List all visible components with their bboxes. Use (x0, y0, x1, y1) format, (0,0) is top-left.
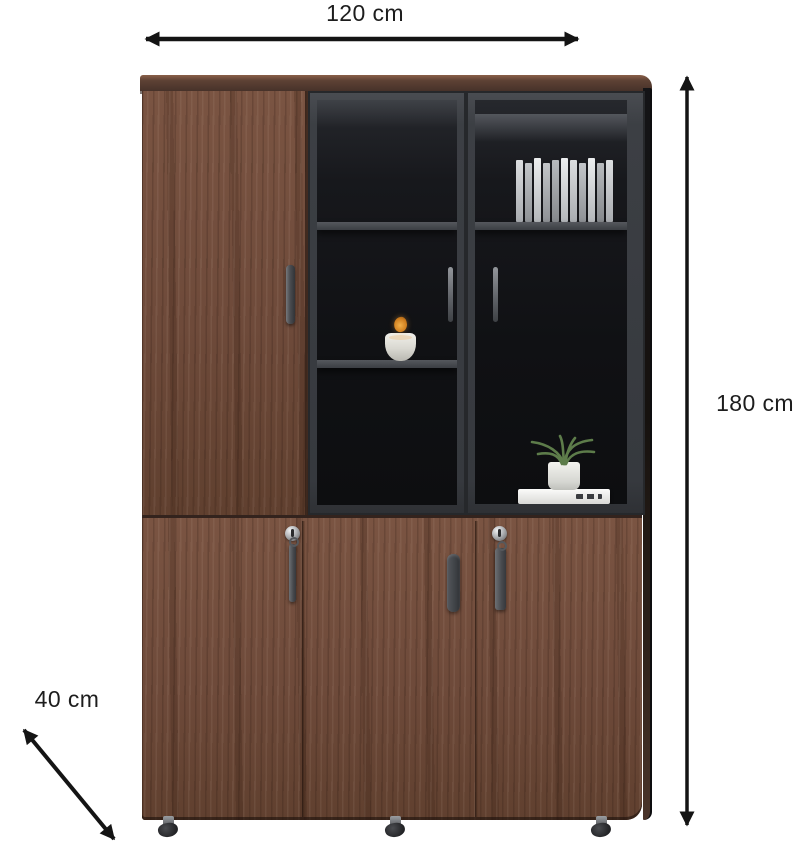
lower-middle-door-handle (447, 554, 460, 612)
middle-glass-interior (317, 100, 457, 505)
door-gap (475, 521, 478, 817)
caster-wheel (589, 816, 619, 838)
book-spine (570, 160, 577, 222)
depth-arrow (24, 730, 114, 839)
caster-wheel (156, 816, 182, 838)
glass-shelf (475, 222, 627, 230)
cabinet-top-panel (140, 75, 652, 91)
plant-leaves-decor (520, 434, 608, 466)
upper-left-wood-door (142, 91, 308, 515)
book-spine (561, 158, 568, 222)
upper-left-door-handle (286, 265, 295, 324)
white-books-decor (518, 489, 610, 504)
book-spine (552, 160, 559, 222)
door-gap (302, 521, 305, 817)
product-image: 120 cm 180 cm 40 cm (0, 0, 800, 863)
glass-reflection (475, 114, 627, 142)
right-glass-door-handle (493, 267, 498, 322)
hanging-key (289, 544, 296, 602)
glass-shelf (317, 222, 457, 230)
right-glass-door (466, 91, 645, 515)
middle-glass-door-handle (448, 267, 453, 322)
keyhole-lock (492, 526, 507, 541)
books-decor (516, 157, 613, 222)
book-spine (525, 163, 532, 222)
glass-reflection (317, 100, 457, 128)
hanging-key (495, 548, 506, 610)
book-spine (543, 163, 550, 222)
lower-door-section (142, 515, 642, 820)
book-spine (516, 160, 523, 222)
plant-pot-decor (548, 462, 580, 490)
book-spine (597, 163, 604, 222)
middle-glass-door (308, 91, 466, 515)
book-spine (588, 158, 595, 222)
width-dimension-label: 120 cm (285, 1, 445, 26)
caster-wheel (383, 816, 411, 838)
height-dimension-label: 180 cm (710, 391, 800, 416)
book-spine (534, 158, 541, 222)
book-spine (606, 160, 613, 222)
glass-shelf (317, 360, 457, 368)
vase-decor (385, 333, 416, 361)
book-spine (579, 163, 586, 222)
depth-dimension-label: 40 cm (18, 687, 116, 712)
cabinet (140, 75, 652, 843)
